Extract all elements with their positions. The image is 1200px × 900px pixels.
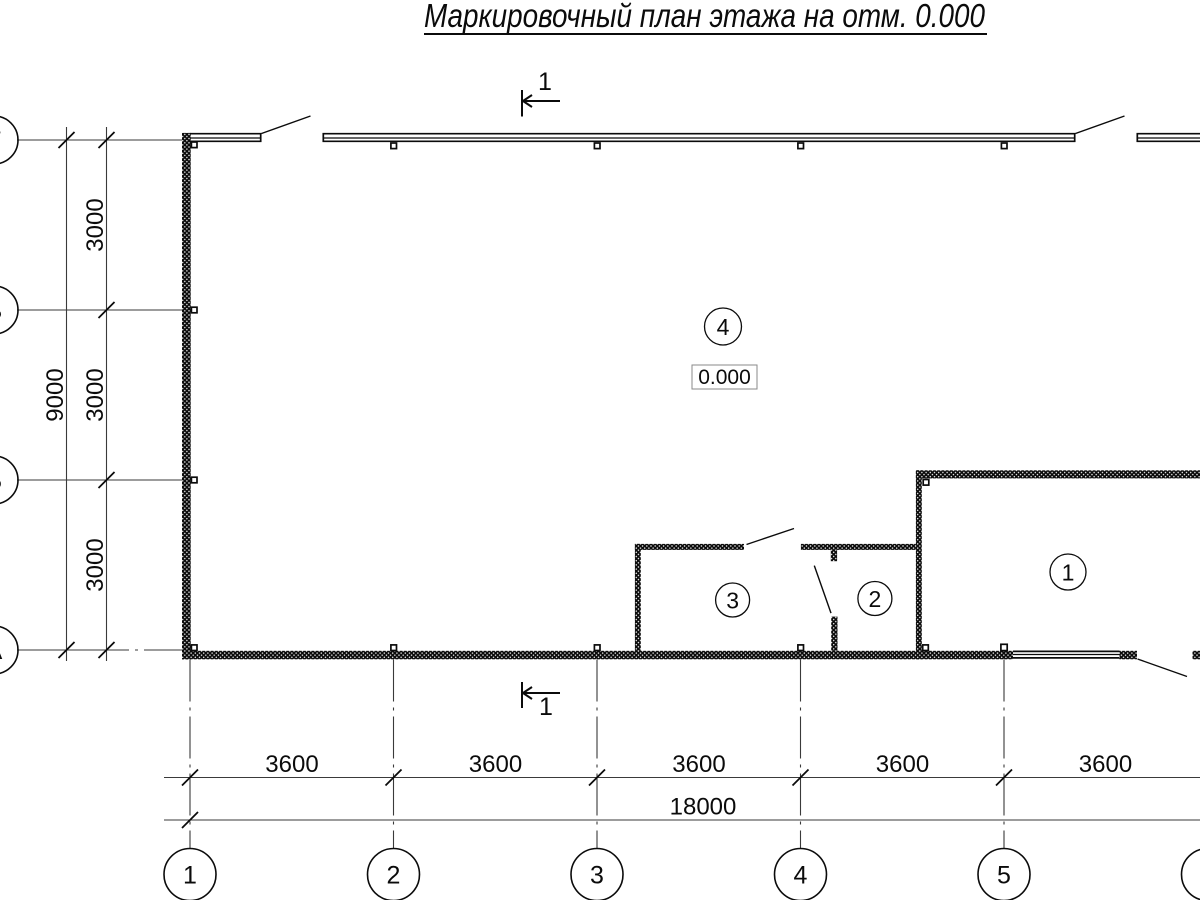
svg-text:3600: 3600 — [672, 751, 725, 778]
svg-text:3: 3 — [726, 588, 739, 614]
svg-text:4: 4 — [794, 862, 808, 890]
svg-text:4: 4 — [717, 314, 730, 340]
svg-text:5: 5 — [997, 862, 1011, 890]
svg-text:Б: Б — [0, 467, 2, 495]
svg-text:3000: 3000 — [82, 538, 109, 591]
svg-text:3000: 3000 — [82, 368, 109, 421]
svg-text:3600: 3600 — [469, 751, 522, 778]
svg-text:9000: 9000 — [42, 368, 69, 421]
svg-text:0.000: 0.000 — [698, 366, 751, 389]
svg-text:В: В — [0, 297, 2, 325]
svg-text:А: А — [0, 637, 3, 665]
svg-text:Маркировочный план этажа на от: Маркировочный план этажа на отм. 0.000 — [424, 0, 986, 34]
svg-text:2: 2 — [387, 862, 401, 890]
svg-text:2: 2 — [869, 586, 882, 612]
svg-text:1: 1 — [538, 68, 552, 96]
svg-text:18000: 18000 — [670, 794, 737, 821]
svg-text:1: 1 — [1062, 560, 1075, 586]
svg-text:1: 1 — [183, 862, 197, 890]
svg-text:1: 1 — [539, 693, 553, 721]
svg-text:3600: 3600 — [265, 751, 318, 778]
svg-text:3000: 3000 — [82, 198, 109, 251]
svg-text:3600: 3600 — [876, 751, 929, 778]
svg-text:3600: 3600 — [1079, 751, 1132, 778]
svg-text:3: 3 — [590, 862, 604, 890]
